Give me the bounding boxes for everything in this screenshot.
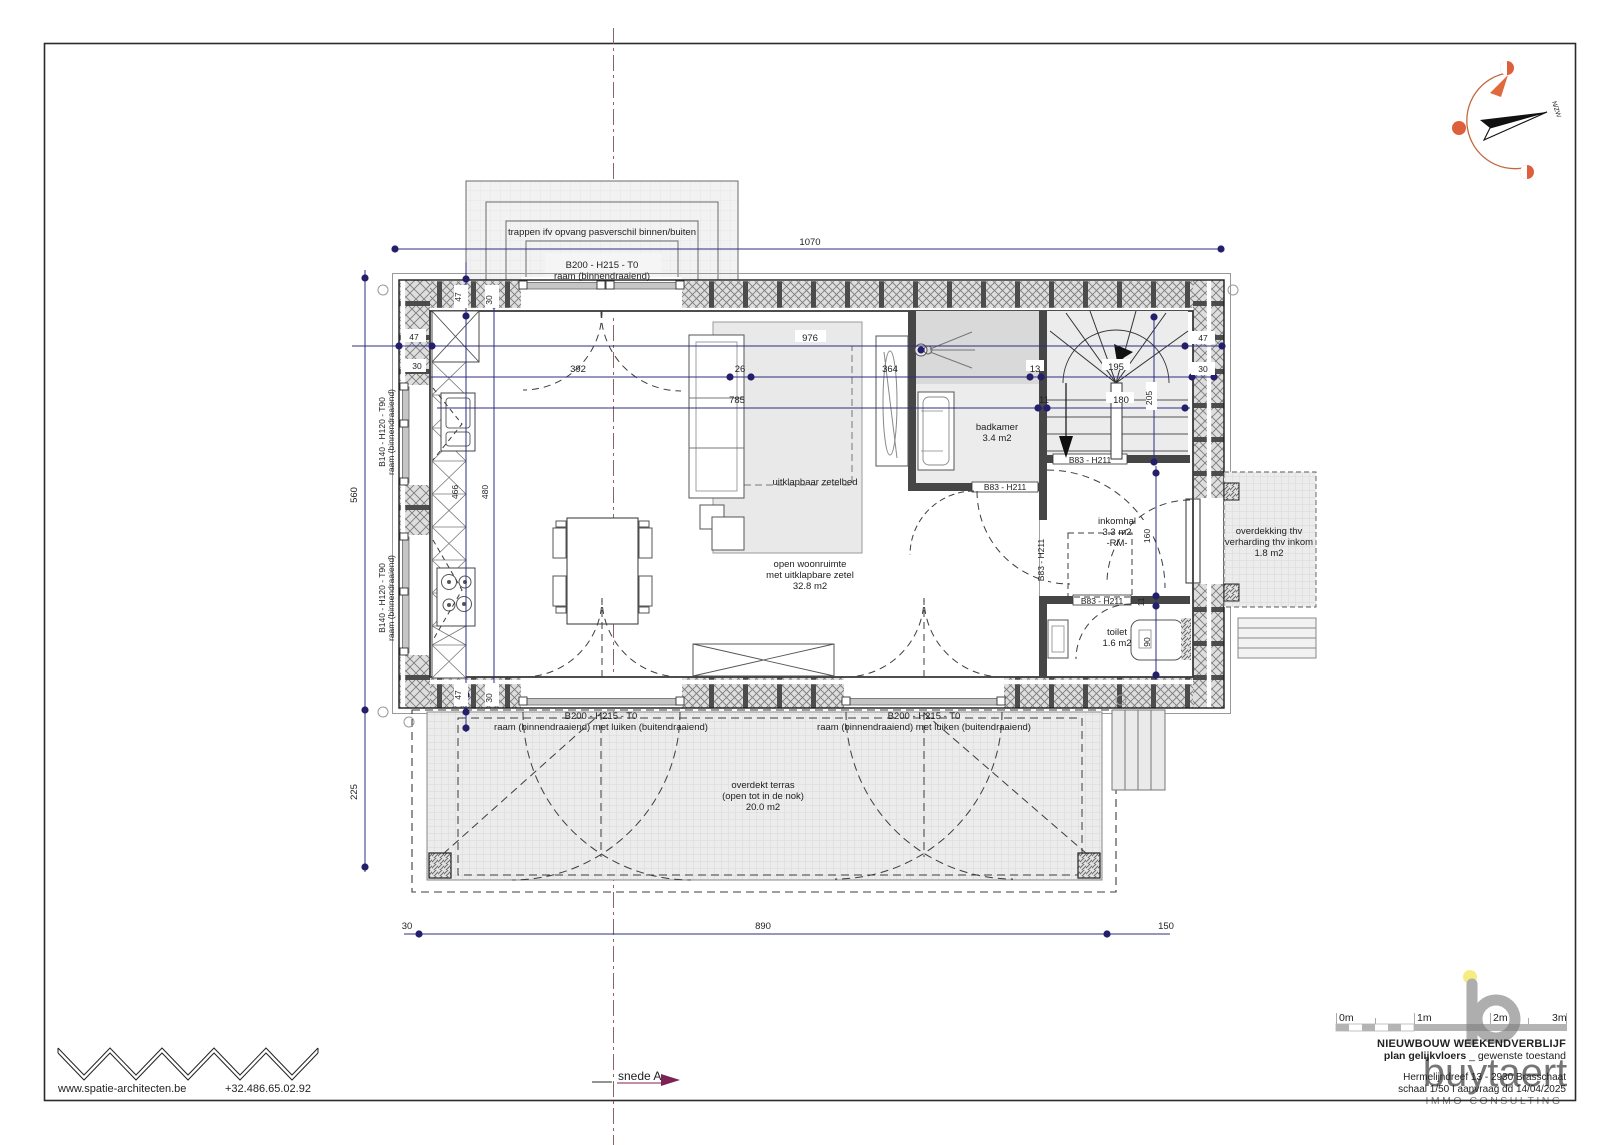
svg-text:1.6 m2: 1.6 m2	[1102, 638, 1131, 649]
svg-text:snede A: snede A	[618, 1069, 661, 1083]
svg-text:225: 225	[349, 784, 360, 800]
svg-text:2m: 2m	[1493, 1012, 1508, 1024]
svg-text:toilet: toilet	[1107, 627, 1127, 638]
svg-text:26: 26	[735, 364, 746, 375]
svg-text:3m: 3m	[1552, 1012, 1567, 1024]
svg-text:Hermelijndreef 13 - 2930 Brass: Hermelijndreef 13 - 2930 Brasschaat	[1403, 1072, 1566, 1083]
svg-text:13: 13	[1030, 364, 1041, 375]
svg-text:3.3 m2: 3.3 m2	[1102, 527, 1131, 538]
svg-text:B83 - H211: B83 - H211	[1036, 539, 1046, 582]
svg-text:976: 976	[802, 333, 818, 344]
svg-text:1.8 m2: 1.8 m2	[1254, 548, 1283, 559]
svg-text:uitklapbaar zetelbed: uitklapbaar zetelbed	[772, 477, 857, 488]
svg-text:IMMO CONSULTING: IMMO CONSULTING	[1425, 1095, 1562, 1107]
svg-text:47: 47	[1198, 333, 1208, 343]
svg-text:verharding thv inkom: verharding thv inkom	[1225, 537, 1313, 548]
svg-text:160: 160	[1142, 529, 1152, 543]
svg-text:B83 - H211: B83 - H211	[984, 482, 1027, 492]
svg-text:schaal 1/50 I aanvraag dd 14: schaal 1/50 I aanvraag dd 14/04/2025	[1398, 1084, 1566, 1095]
svg-text:NIEUWBOUW WEEKENDVERBLIJF: NIEUWBOUW WEEKENDVERBLIJF	[1377, 1038, 1566, 1050]
svg-text:raam (binnendraaiend) met luik: raam (binnendraaiend) met luiken (buiten…	[494, 722, 708, 733]
svg-text:205: 205	[1144, 391, 1154, 405]
svg-text:11: 11	[1039, 395, 1049, 406]
svg-text:B83 - H211: B83 - H211	[1081, 596, 1124, 606]
svg-text:47: 47	[409, 332, 419, 342]
svg-text:150: 150	[1158, 921, 1174, 932]
svg-text:met uitklapbare zetel: met uitklapbare zetel	[766, 570, 854, 581]
svg-text:overdekking thv: overdekking thv	[1236, 526, 1303, 537]
svg-text:B200 - H215 - T0: B200 - H215 - T0	[565, 711, 638, 722]
svg-text:30: 30	[484, 295, 494, 305]
svg-text:32.8 m2: 32.8 m2	[793, 581, 827, 592]
svg-text:B83 - H211: B83 - H211	[1069, 455, 1112, 465]
svg-text:364: 364	[882, 364, 898, 375]
svg-text:trappen ifv opvang pasverschil: trappen ifv opvang pasverschil binnen/bu…	[508, 227, 696, 238]
svg-text:B200 - H215 - T0: B200 - H215 - T0	[566, 260, 639, 271]
svg-text:3.4 m2: 3.4 m2	[982, 433, 1011, 444]
svg-text:raam (binnendraaiend) met luik: raam (binnendraaiend) met luiken (buiten…	[817, 722, 1031, 733]
svg-text:open woonruimte: open woonruimte	[774, 559, 847, 570]
svg-text:-RM-: -RM-	[1106, 538, 1127, 549]
svg-text:www.spatie-architecten.be: www.spatie-architecten.be	[57, 1083, 186, 1095]
svg-text:480: 480	[480, 485, 490, 499]
svg-text:466: 466	[450, 485, 460, 499]
svg-text:785: 785	[729, 395, 745, 406]
svg-text:195: 195	[1108, 362, 1124, 373]
svg-text:11: 11	[1136, 597, 1146, 606]
svg-text:raam (binnendraaiend): raam (binnendraaiend)	[386, 389, 396, 475]
svg-text:30: 30	[412, 361, 422, 371]
svg-text:30: 30	[484, 693, 494, 703]
svg-text:392: 392	[570, 364, 586, 375]
svg-text:plan gelijkvloers _ gewenste t: plan gelijkvloers _ gewenste toestand	[1384, 1050, 1566, 1062]
svg-text:0m: 0m	[1339, 1012, 1354, 1024]
svg-text:47: 47	[453, 690, 463, 700]
svg-text:1m: 1m	[1417, 1012, 1432, 1024]
svg-text:20.0 m2: 20.0 m2	[746, 802, 780, 813]
svg-text:30: 30	[1198, 364, 1208, 374]
svg-text:560: 560	[349, 487, 360, 503]
svg-text:1070: 1070	[799, 237, 820, 248]
svg-text:890: 890	[755, 921, 771, 932]
svg-text:inkomhal: inkomhal	[1098, 516, 1136, 527]
svg-text:badkamer: badkamer	[976, 422, 1018, 433]
svg-text:30: 30	[402, 921, 413, 932]
svg-text:90: 90	[1142, 637, 1152, 647]
svg-text:(open tot in de nok): (open tot in de nok)	[722, 791, 804, 802]
svg-text:47: 47	[453, 292, 463, 302]
svg-text:+32.486.65.02.92: +32.486.65.02.92	[225, 1083, 311, 1095]
svg-text:180: 180	[1113, 395, 1129, 406]
svg-text:raam (binnendraaiend): raam (binnendraaiend)	[554, 271, 650, 282]
svg-text:B200 - H215 - T0: B200 - H215 - T0	[888, 711, 961, 722]
svg-text:overdekt terras: overdekt terras	[731, 780, 795, 791]
svg-text:raam (binnendraaiend): raam (binnendraaiend)	[386, 555, 396, 641]
